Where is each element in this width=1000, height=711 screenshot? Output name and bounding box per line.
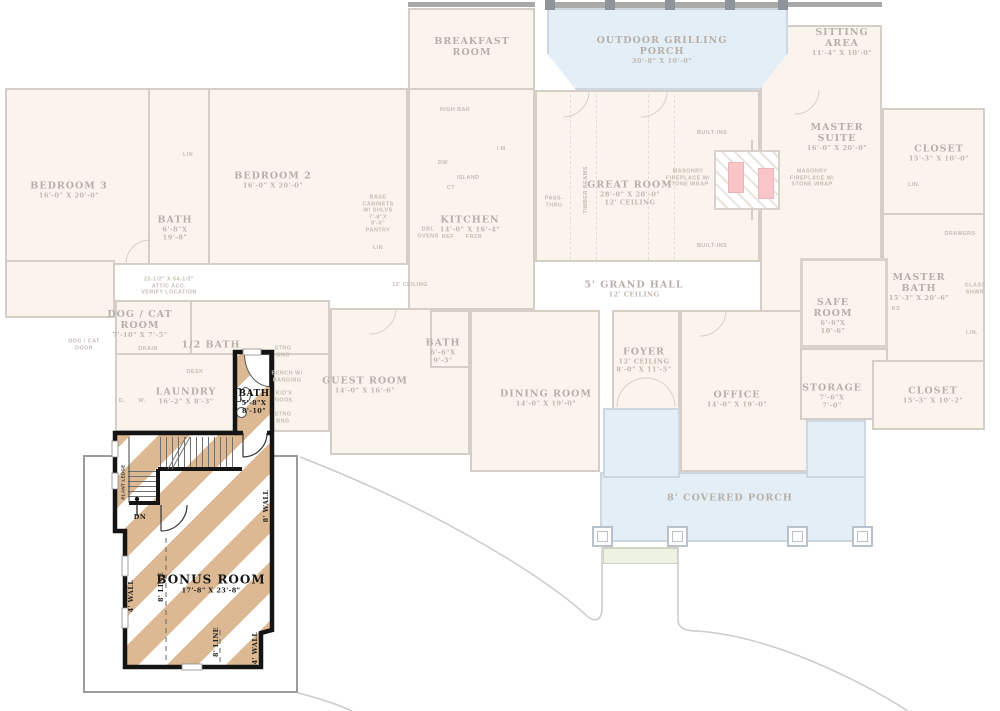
left-wing [5, 88, 408, 265]
covered-porch-main [600, 472, 866, 542]
sink [236, 407, 247, 418]
covered-porch-foyer-bump [603, 408, 680, 478]
grilling-porch-block [547, 8, 788, 90]
porch-post [778, 0, 788, 10]
top-fence [788, 2, 882, 7]
front-steps [603, 547, 678, 564]
label-line: DOOR [68, 345, 100, 352]
wall [208, 88, 210, 265]
left-closets [5, 260, 115, 318]
right-column [882, 108, 985, 365]
timber-beam [674, 95, 676, 260]
dining-block [470, 310, 600, 472]
porch-pillar [667, 526, 688, 547]
porch-pillar [852, 526, 873, 547]
label-line: 22-1/2" X 54-1/2" [141, 276, 197, 283]
porch-post [665, 0, 675, 10]
center-column [408, 8, 535, 310]
wall [148, 88, 150, 265]
dog-cat-door-label: DOG / CATDOOR [68, 339, 100, 352]
label-line: 5' GRAND HALL [584, 280, 683, 291]
firebox-right [758, 168, 774, 199]
timber-beam [570, 95, 572, 260]
firebox-left [728, 162, 744, 193]
porch-pillar [787, 526, 808, 547]
porch-pillar [592, 526, 613, 547]
label-line: 12' CEILING [584, 291, 683, 299]
label-line: ATTIC ACC. [141, 283, 197, 290]
foyer-block [612, 310, 680, 415]
mud-block [115, 300, 330, 432]
label-line: DOG / CAT [68, 339, 100, 346]
timber-beam [648, 95, 650, 260]
covered-porch-right-bump [806, 420, 866, 478]
guest-bath-box [430, 310, 470, 368]
stair-treads-upper [160, 437, 238, 467]
top-fence [408, 2, 535, 7]
label-line: VERIFY LOCATION [141, 289, 197, 296]
grand-hall-label: 5' GRAND HALL12' CEILING [584, 280, 683, 299]
porch-post [545, 0, 555, 10]
wall [882, 213, 985, 215]
toilet [240, 387, 251, 403]
attic-access-label: 22-1/2" X 54-1/2"ATTIC ACC.VERIFY LOCATI… [141, 276, 197, 296]
floor-plan-canvas: BREAKFASTROOMOUTDOOR GRILLINGPORCH30'-8"… [0, 0, 1000, 711]
closet-br-block [872, 360, 985, 430]
wall [115, 353, 330, 355]
porch-post [605, 0, 615, 10]
timber-beam [596, 95, 598, 260]
wall [190, 300, 192, 355]
safe-room-block [800, 258, 888, 348]
stair-treads-winder [128, 471, 158, 501]
wall [408, 88, 535, 90]
porch-post [725, 0, 735, 10]
